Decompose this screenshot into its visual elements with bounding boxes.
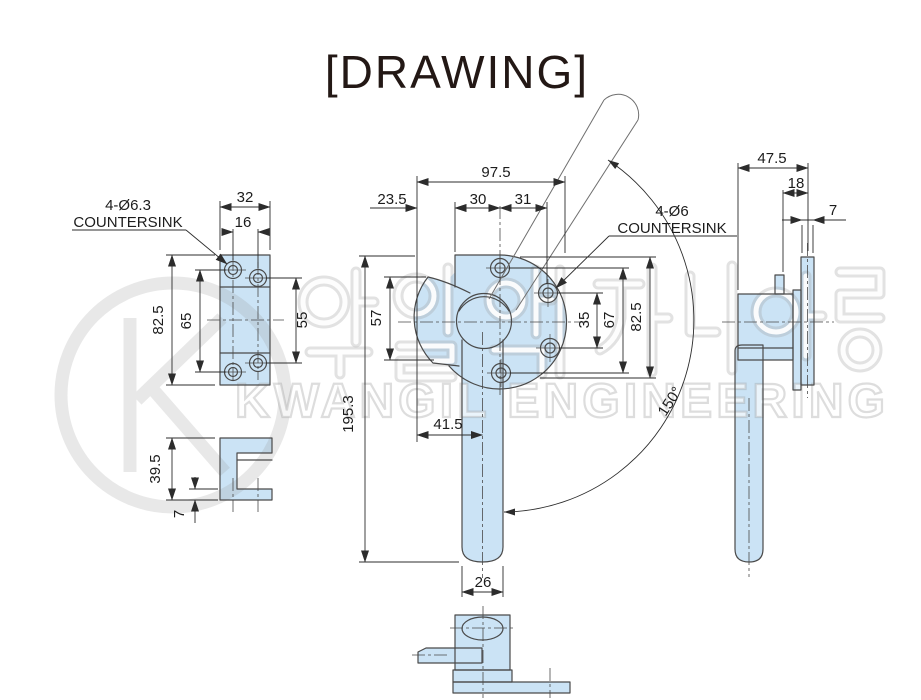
dim-front-height: 82.5 — [628, 302, 645, 331]
note-plate-hole-line2: COUNTERSINK — [73, 214, 182, 231]
dim-keeper-height: 39.5 — [147, 454, 164, 483]
side-dimensions: 47.5 18 7 — [738, 150, 846, 290]
bottom-collar-fill — [453, 670, 512, 682]
dim-plate-hole-cc-right: 55 — [294, 312, 311, 329]
dim-plate-height: 82.5 — [150, 305, 167, 334]
drawing-title: [DRAWING] — [325, 46, 589, 98]
dim-front-cam-height: 57 — [368, 310, 385, 327]
dim-front-handle-offset: 41.5 — [433, 416, 462, 433]
dim-plate-width: 32 — [237, 189, 254, 206]
dim-plate-hole-cc-left: 65 — [178, 313, 195, 330]
dim-front-handle-width: 26 — [475, 574, 492, 591]
dim-side-depth: 47.5 — [757, 150, 786, 167]
drawing-canvas: KWANGIL ENGINEERING 32 16 82.5 65 — [0, 0, 921, 700]
dim-front-total-width: 97.5 — [481, 164, 510, 181]
dim-front-cc-left: 30 — [470, 191, 487, 208]
dim-front-cc-inner: 35 — [576, 312, 593, 329]
note-plate-hole-line1: 4-Ø6.3 — [105, 197, 151, 214]
drawing-page: KWANGIL ENGINEERING 32 16 82.5 65 — [0, 0, 921, 700]
dim-front-edge-offset: 23.5 — [377, 191, 406, 208]
note-front-hole-line2: COUNTERSINK — [617, 220, 726, 237]
dim-front-total-height: 195.3 — [340, 395, 357, 433]
dim-front-cc-outer: 67 — [601, 312, 618, 329]
dim-side-flange-thickness: 7 — [829, 202, 837, 219]
dim-keeper-thickness: 7 — [171, 510, 188, 518]
plate-countersink-note: 4-Ø6.3 COUNTERSINK — [72, 197, 227, 264]
dim-side-offset: 18 — [788, 175, 805, 192]
dim-front-cc-right: 31 — [515, 191, 532, 208]
bottom-base-fill — [453, 682, 570, 693]
bottom-latch-fill — [418, 648, 482, 663]
dim-plate-hole-cc-width: 16 — [235, 214, 252, 231]
note-front-hole-line1: 4-Ø6 — [655, 203, 688, 220]
company-name-text: KWANGIL ENGINEERING — [235, 375, 888, 428]
